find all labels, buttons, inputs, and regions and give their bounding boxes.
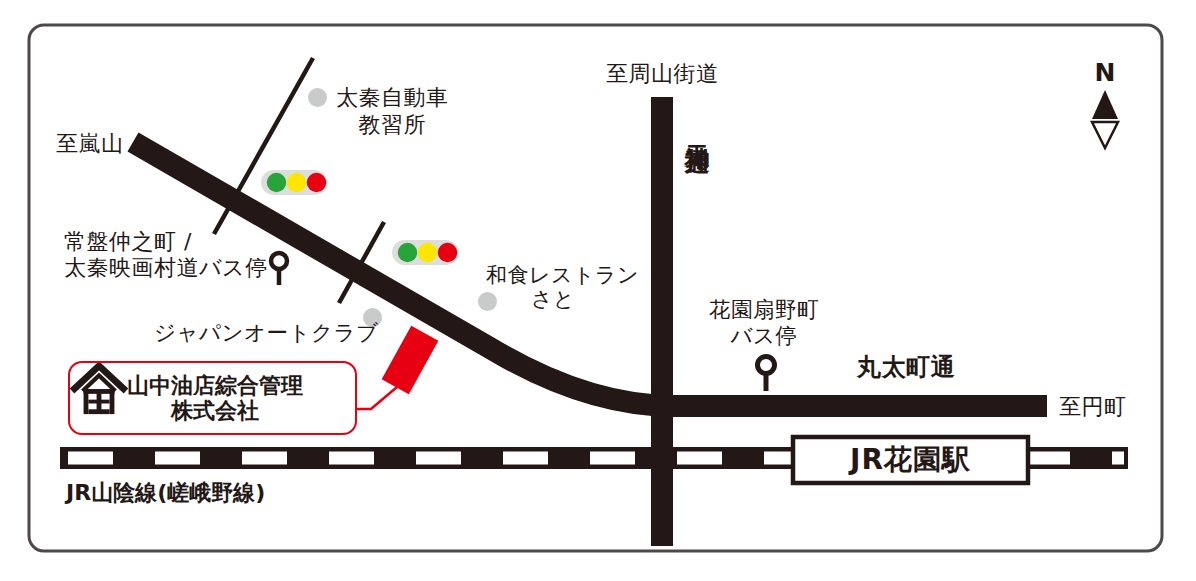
station-label: JR花園駅 [793, 437, 1028, 483]
railway-label-jr-sanin-line: JR山陰線(嵯峨野線) [66, 480, 265, 506]
red-light-icon [307, 173, 326, 192]
road-label-to-shuzan-kaido: 至周山街道 [606, 61, 719, 87]
driving-school-line1: 太秦自動車 [336, 84, 449, 111]
landmark-label-washoku-sato: 和食レストラン さと [486, 263, 620, 311]
access-map: 至嵐山 太秦自動車 教習所 至周山街道 天神川通 常盤仲之町 / 太秦映画村道バ… [0, 0, 1196, 581]
washoku-sato-line2: さと [486, 287, 620, 311]
hanazono-bus-stop-line1: 花園扇野町 [705, 297, 823, 323]
compass-north-label: N [1088, 58, 1122, 88]
driving-school-dot [308, 88, 327, 107]
road-label-tenjingawa-dori: 天神川通 [682, 125, 712, 129]
green-light-icon [398, 243, 417, 262]
road-label-to-enmachi: 至円町 [1059, 394, 1127, 420]
traffic-light-2 [392, 240, 458, 265]
logo-seal-glyph [84, 389, 115, 414]
tokiwa-bus-stop-line1: 常盤仲之町 / [64, 229, 268, 255]
landmark-label-driving-school: 太秦自動車 教習所 [336, 84, 449, 138]
tokiwa-bus-stop-line2: 太秦映画村道バス停 [64, 255, 268, 281]
washoku-sato-line1: 和食レストラン [486, 263, 620, 287]
landmark-label-tokiwa-bus-stop: 常盤仲之町 / 太秦映画村道バス停 [64, 229, 268, 281]
landmark-label-hanazono-bus-stop: 花園扇野町 バス停 [705, 297, 823, 349]
road-label-marutamachi-dori: 丸太町通 [857, 353, 955, 381]
traffic-light-1 [261, 170, 327, 195]
yellow-light-icon [287, 173, 306, 192]
company-logo-icon [70, 363, 128, 417]
yellow-light-icon [418, 243, 437, 262]
red-light-icon [438, 243, 457, 262]
landmark-label-japan-auto-club: ジャパンオートクラブ [154, 320, 379, 345]
hanazono-bus-stop-line2: バス停 [705, 323, 823, 349]
road-label-to-arashiyama: 至嵐山 [56, 131, 124, 157]
green-light-icon [267, 173, 286, 192]
driving-school-line2: 教習所 [336, 111, 449, 138]
company-label-box: 山中油店綜合管理 株式会社 [68, 361, 357, 435]
